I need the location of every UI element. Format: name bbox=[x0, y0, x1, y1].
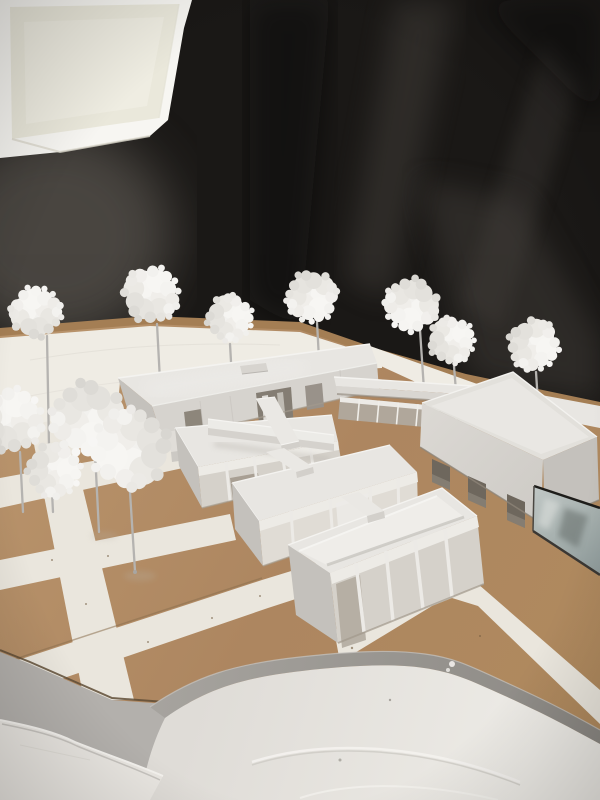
photo-vignette bbox=[0, 0, 600, 800]
photo-stage: Photograph of a white architectural scal… bbox=[0, 0, 600, 800]
model-photo: Photograph of a white architectural scal… bbox=[0, 0, 600, 800]
